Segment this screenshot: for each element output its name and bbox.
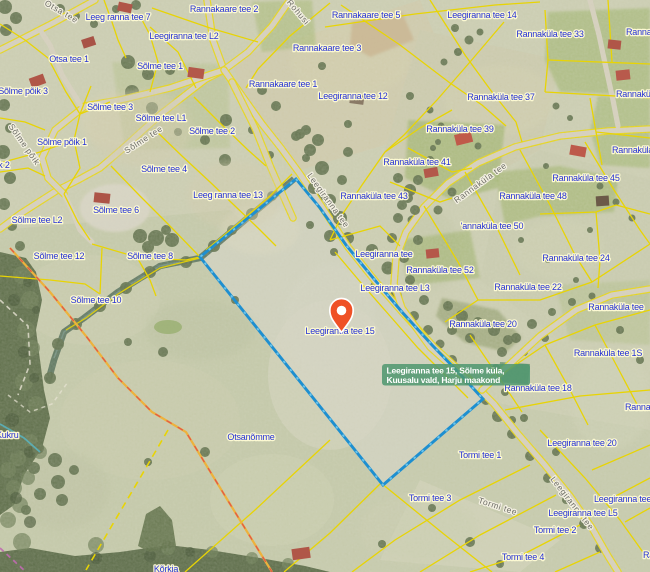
svg-text:Sõlme tee 4: Sõlme tee 4	[141, 164, 187, 174]
svg-text:Leegiranna tee 12: Leegiranna tee 12	[318, 91, 387, 101]
svg-text:Rannakaare tee 1: Rannakaare tee 1	[249, 79, 318, 89]
svg-text:Rannakaare tee 5: Rannakaare tee 5	[332, 10, 401, 20]
svg-text:Rannakaare tee 3: Rannakaare tee 3	[293, 43, 362, 53]
svg-text:Sõlme tee 10: Sõlme tee 10	[71, 295, 122, 305]
svg-text:Sõlme tee 2: Sõlme tee 2	[189, 126, 235, 136]
svg-text:Rannaküla tee 33: Rannaküla tee 33	[516, 29, 584, 39]
svg-text:Rannaküla tee 1S: Rannaküla tee 1S	[574, 348, 643, 358]
svg-text:Rannaküla tee 24: Rannaküla tee 24	[542, 253, 610, 263]
svg-text:Rannaküla tee 52: Rannaküla tee 52	[406, 265, 474, 275]
svg-text:Sõlme põik 2: Sõlme põik 2	[0, 160, 10, 170]
svg-text:Tormi tee 4: Tormi tee 4	[502, 552, 545, 562]
svg-text:Rannakaare tee 2: Rannakaare tee 2	[190, 4, 259, 14]
svg-text:Rannaküla: Rannaküla	[626, 27, 650, 37]
svg-text:Tormi tee 3: Tormi tee 3	[409, 493, 452, 503]
svg-text:Rannaküla tee 45: Rannaküla tee 45	[552, 173, 620, 183]
svg-text:Sõlme tee 12: Sõlme tee 12	[34, 251, 85, 261]
svg-text:'annaküla tee 50: 'annaküla tee 50	[461, 221, 524, 231]
svg-text:Kõrkja: Kõrkja	[154, 564, 179, 572]
svg-text:Rannaküla tee 37: Rannaküla tee 37	[467, 92, 535, 102]
svg-text:Rannaküla tee: Rannaküla tee	[588, 302, 644, 312]
svg-text:Otsanõmme: Otsanõmme	[227, 432, 274, 442]
svg-text:Leeg ranna tee 7: Leeg ranna tee 7	[86, 12, 151, 22]
svg-text:Sõlme tee 6: Sõlme tee 6	[93, 205, 139, 215]
svg-text:Leegiranna tee 14: Leegiranna tee 14	[447, 10, 516, 20]
svg-text:Rannaküla tee 43: Rannaküla tee 43	[340, 191, 408, 201]
svg-text:Sõlme põik 3: Sõlme põik 3	[0, 86, 48, 96]
svg-text:Ra: Ra	[643, 550, 650, 560]
svg-text:Rannaküla tee 48: Rannaküla tee 48	[499, 191, 567, 201]
svg-text:Sõlme põik 1: Sõlme põik 1	[37, 137, 87, 147]
svg-text:Leegiranna tee L3: Leegiranna tee L3	[360, 283, 429, 293]
svg-text:Kuusalu vald, Harju maakond: Kuusalu vald, Harju maakond	[387, 375, 501, 385]
svg-text:Rannaküla tee 41: Rannaküla tee 41	[383, 157, 451, 167]
svg-text:Kukru: Kukru	[0, 430, 19, 440]
svg-text:Sõlme tee 1: Sõlme tee 1	[137, 61, 183, 71]
svg-text:Leegiranna tee L5: Leegiranna tee L5	[548, 508, 617, 518]
svg-text:Sõlme tee 8: Sõlme tee 8	[127, 251, 173, 261]
svg-text:Tormi tee 1: Tormi tee 1	[459, 450, 502, 460]
svg-text:Otsa tee 1: Otsa tee 1	[49, 54, 89, 64]
svg-text:Rannakü: Rannakü	[625, 402, 650, 412]
svg-text:Leeg ranna tee 13: Leeg ranna tee 13	[193, 190, 263, 200]
svg-text:Rannaküla tee 20: Rannaküla tee 20	[449, 319, 517, 329]
svg-text:Leegiranna tee 20: Leegiranna tee 20	[547, 438, 616, 448]
svg-text:Sõlme tee 3: Sõlme tee 3	[87, 102, 133, 112]
svg-text:Rannakül: Rannakül	[616, 89, 650, 99]
svg-text:Rannaküla tee 39: Rannaküla tee 39	[426, 124, 494, 134]
svg-text:Leegiranna tee L2: Leegiranna tee L2	[149, 31, 218, 41]
svg-text:Sõlme tee L1: Sõlme tee L1	[136, 113, 187, 123]
svg-text:Rannaküla t: Rannaküla t	[612, 145, 650, 155]
svg-text:Rannaküla tee 22: Rannaküla tee 22	[494, 282, 562, 292]
svg-text:Leegiranna tee: Leegiranna tee	[594, 494, 650, 504]
svg-text:Sõlme tee L2: Sõlme tee L2	[12, 215, 63, 225]
svg-text:Leegiranna tee: Leegiranna tee	[355, 249, 412, 259]
svg-text:Tormi tee 2: Tormi tee 2	[534, 525, 577, 535]
